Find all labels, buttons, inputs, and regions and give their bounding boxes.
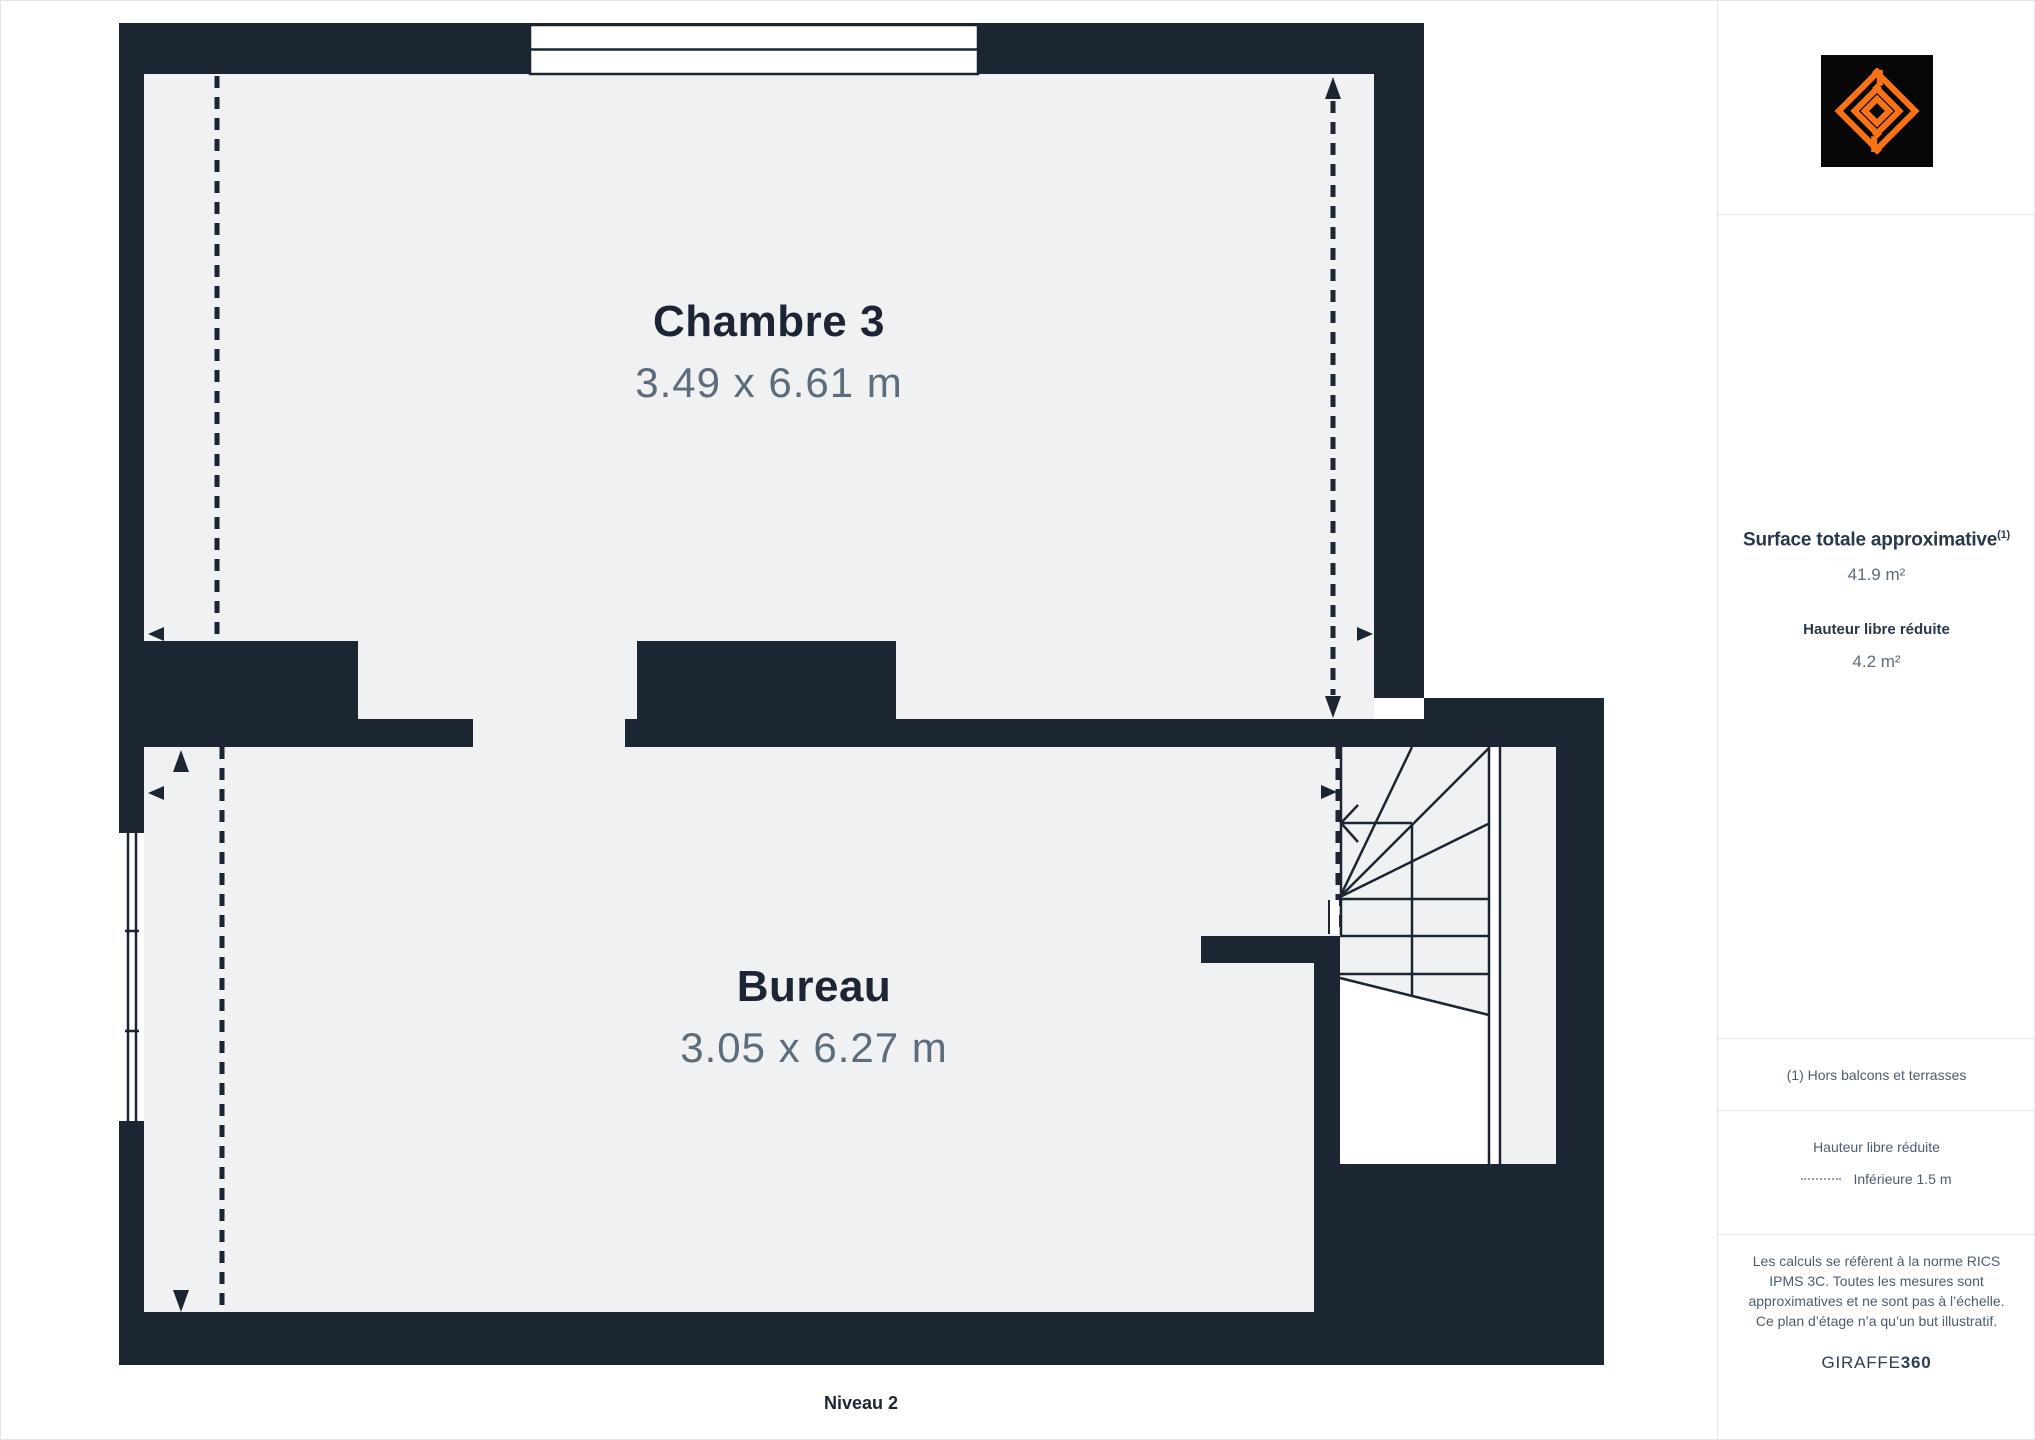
stair-door-jamb <box>1329 900 1339 934</box>
legend-row: Inférieure 1.5 m <box>1718 1171 2035 1187</box>
wall-mid-right <box>625 719 1604 747</box>
wall-chunk-left <box>144 641 358 721</box>
surface-total-value: 41.9 m² <box>1718 565 2035 585</box>
door-opening-floor <box>473 719 625 749</box>
info-sidebar: Surface totale approximative(1) 41.9 m² … <box>1717 1 2035 1439</box>
brand-logotype: GIRAFFE360 <box>1718 1353 2035 1373</box>
disclaimer-text: Les calculs se réfèrent à la norme RICS … <box>1746 1251 2008 1331</box>
surface-total-title: Surface totale approximative(1) <box>1718 529 2035 551</box>
surface-total-label: Surface totale approximative <box>1743 529 1997 550</box>
footnote-section: (1) Hors balcons et terrasses <box>1718 1038 2035 1110</box>
wall-l-horizontal <box>1201 936 1340 963</box>
bureau-floor <box>144 745 1340 1313</box>
level-label: Niveau 2 <box>361 1393 1361 1414</box>
surface-footnote-marker: (1) <box>1997 529 2010 541</box>
floorplan-page: Chambre 3 3.49 x 6.61 m Bureau 3.05 x 6.… <box>0 0 2035 1440</box>
brand-suffix: 360 <box>1901 1353 1932 1372</box>
disclaimer-section: Les calculs se réfèrent à la norme RICS … <box>1718 1234 2035 1440</box>
wall-l-vertical <box>1314 963 1340 1313</box>
giraffe360-logo <box>1821 54 1933 168</box>
wall-left <box>119 23 144 1365</box>
giraffe360-logo-icon <box>1821 54 1933 168</box>
window-top-icon <box>530 25 978 74</box>
window-left-icon <box>119 833 144 1121</box>
footnote-text: (1) Hors balcons et terrasses <box>1787 1067 1967 1083</box>
reduced-height-value: 4.2 m² <box>1718 652 2035 672</box>
dashed-line-sample-icon <box>1801 1178 1841 1180</box>
legend-section: Hauteur libre réduite Inférieure 1.5 m <box>1718 1110 2035 1234</box>
wall-mid-left <box>119 719 473 747</box>
logo-section <box>1718 1 2035 215</box>
legend-item-label: Inférieure 1.5 m <box>1853 1171 1951 1187</box>
brand-name: GIRAFFE <box>1821 1353 1900 1372</box>
reduced-height-title: Hauteur libre réduite <box>1718 621 2035 638</box>
wall-bottom <box>119 1312 1604 1365</box>
stair-rail-gap <box>1490 747 1500 1164</box>
wall-chunk-center <box>637 641 896 721</box>
wall-stair-lower-fill <box>1340 1164 1604 1314</box>
chambre3-floor <box>144 72 1374 723</box>
surface-summary: Surface totale approximative(1) 41.9 m² … <box>1718 529 2035 672</box>
legend-title: Hauteur libre réduite <box>1718 1139 2035 1155</box>
wall-right-upper <box>1374 23 1424 698</box>
